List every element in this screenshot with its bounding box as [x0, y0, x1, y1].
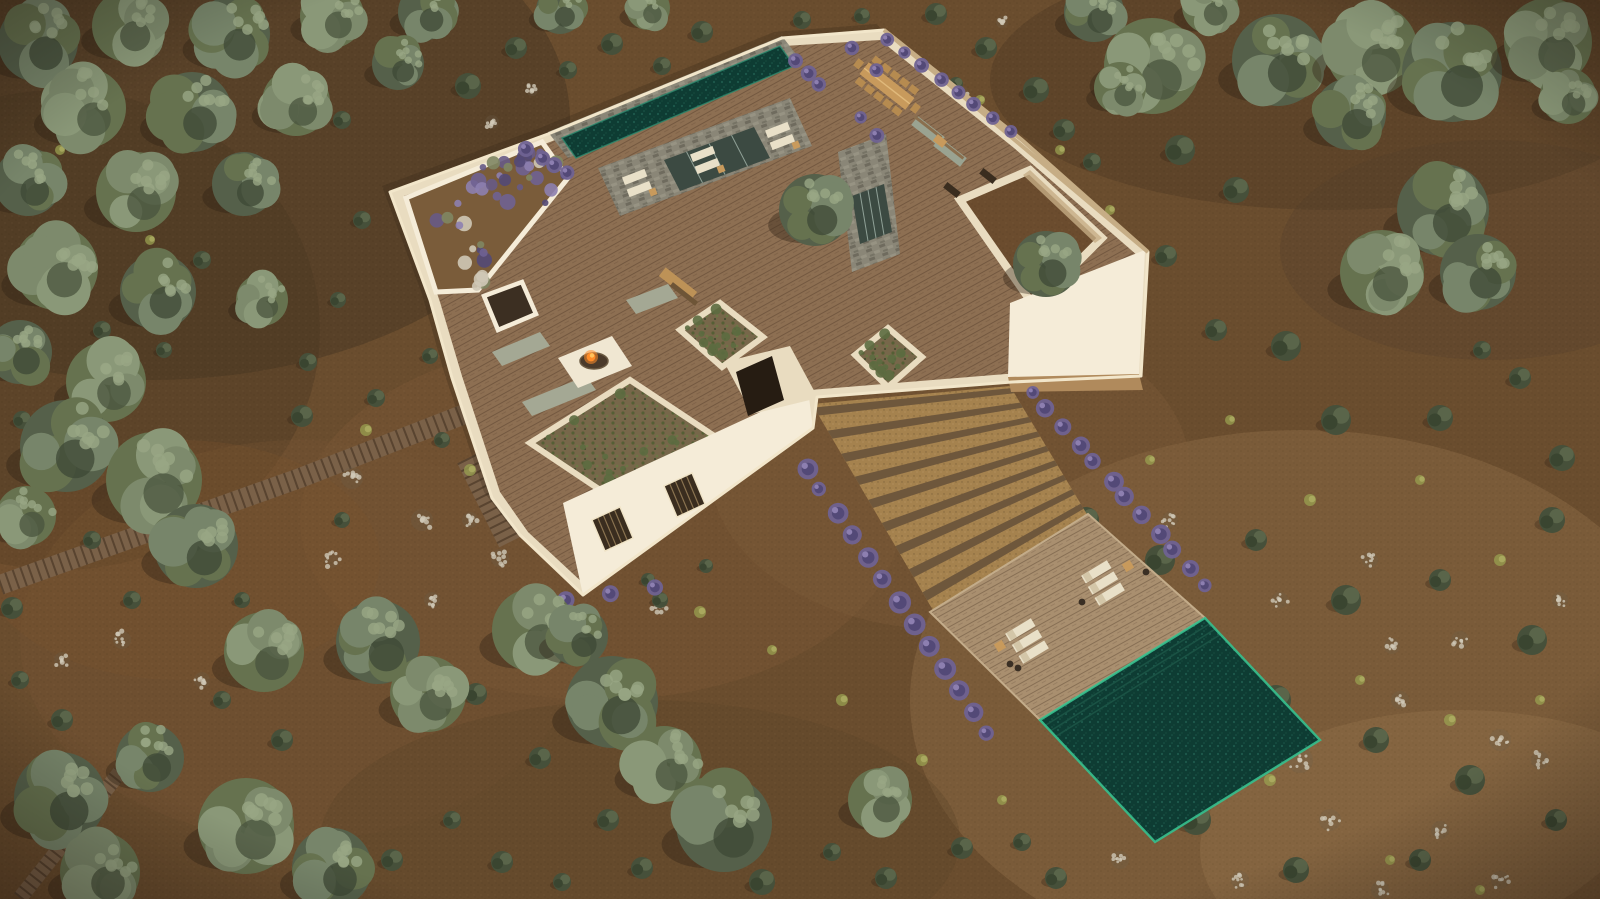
vignette-overlay — [0, 0, 1600, 899]
architectural-aerial-render — [0, 0, 1600, 899]
vignette — [0, 0, 1600, 899]
villa-aerial-scene — [0, 0, 1600, 899]
